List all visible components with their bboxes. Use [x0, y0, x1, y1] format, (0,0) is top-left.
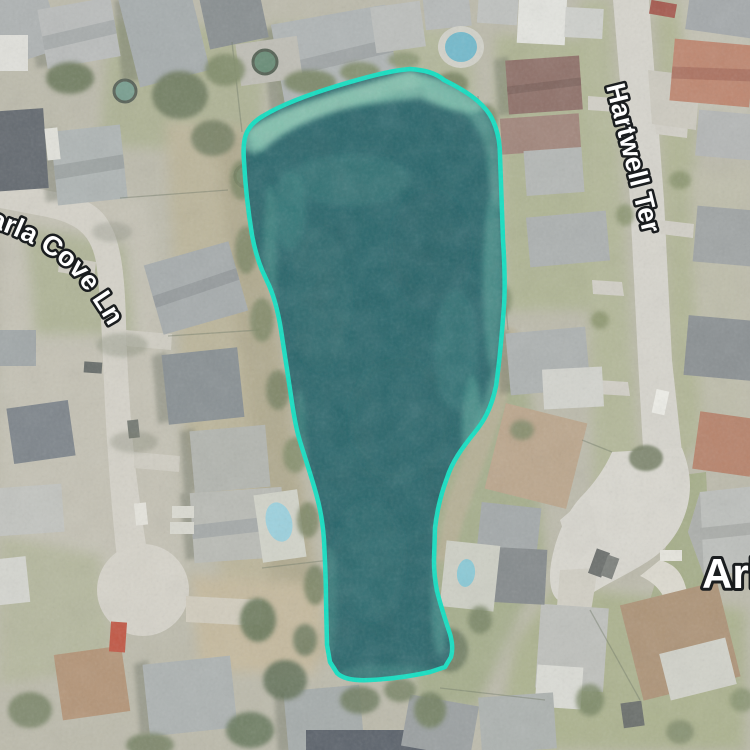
svg-text:Arli: Arli: [702, 550, 750, 597]
